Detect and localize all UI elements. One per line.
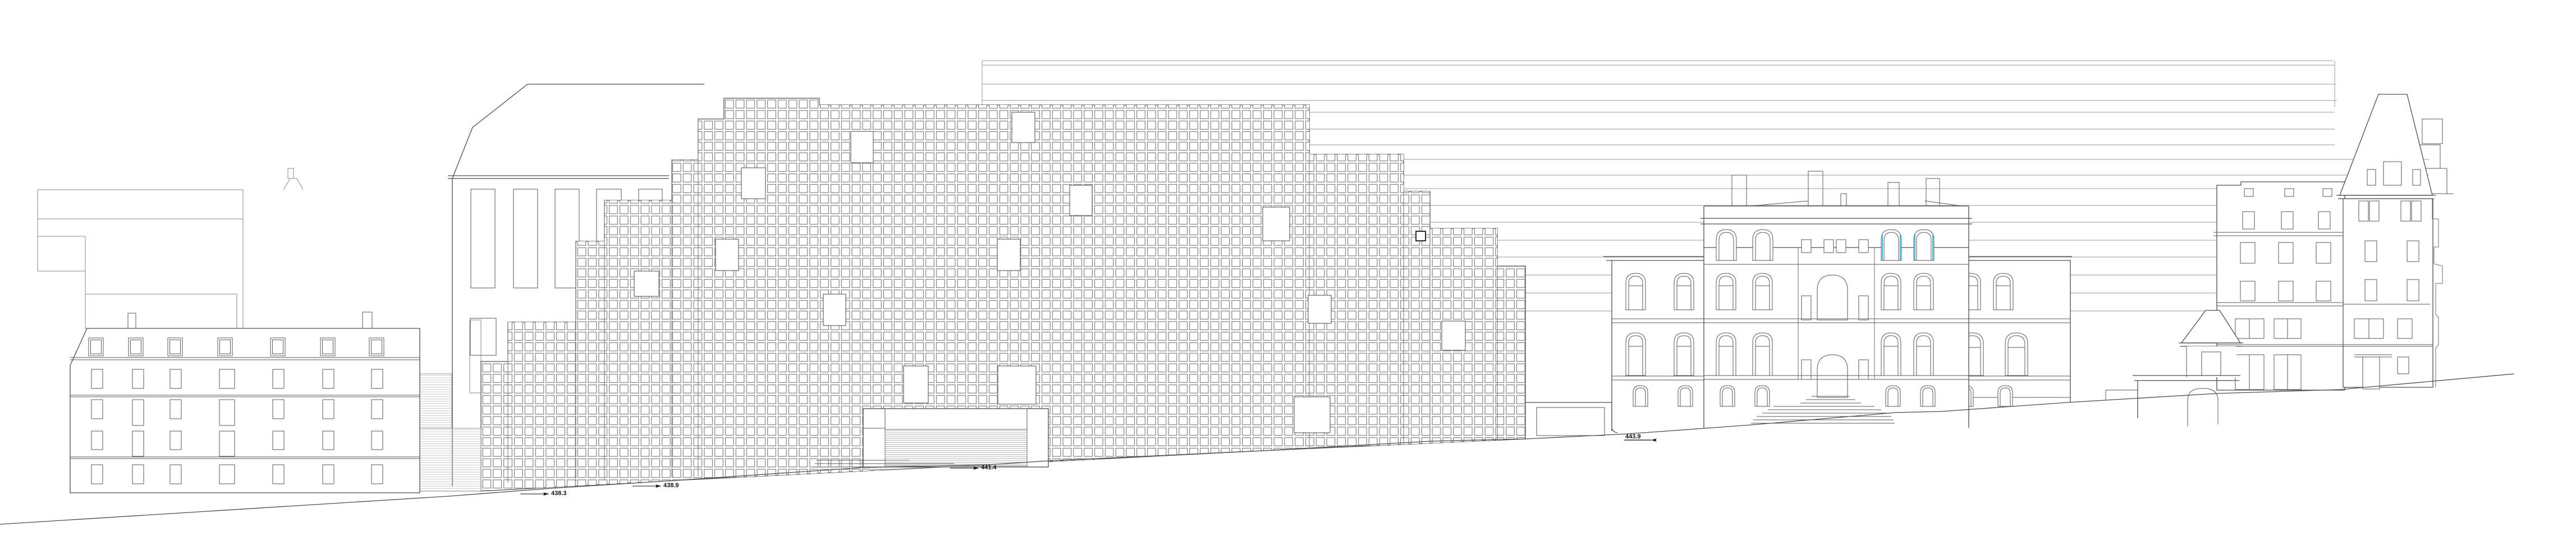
palazzo-chimneys (1732, 171, 1961, 207)
grid-large-opening (1442, 321, 1465, 350)
palazzo-left-wing (1603, 257, 1713, 433)
elevation-svg: 438.3 438.9 441.4 443.9 (0, 0, 2576, 554)
elevation-drawing: 438.3 438.9 441.4 443.9 (0, 0, 2576, 554)
palazzo-central-block (1700, 206, 1972, 428)
grid-large-opening (716, 239, 739, 271)
spot-elevation-value: 438.3 (551, 490, 567, 497)
left-background-volumes (38, 168, 303, 329)
chimney (363, 312, 372, 328)
spot-elevation: 443.9 (1624, 433, 1657, 442)
grid-large-opening (823, 294, 846, 326)
grid-large-opening (1070, 185, 1092, 216)
grid-large-opening (1308, 295, 1331, 323)
spot-elevation-value: 443.9 (1625, 433, 1641, 440)
grid-large-opening (904, 366, 928, 403)
grid-large-opening (851, 131, 873, 163)
grid-large-opening (1294, 397, 1330, 433)
chimney (128, 313, 136, 328)
tower-building (2336, 94, 2454, 389)
section-cut-edge (2432, 199, 2442, 387)
rear-wall-and-garage (1525, 402, 1612, 441)
grid-large-opening (998, 366, 1036, 404)
grid-large-opening (1012, 112, 1035, 143)
grid-accent-cell (1416, 231, 1425, 241)
chimney (2422, 119, 2442, 144)
left-building-outline (70, 328, 420, 493)
turret-and-porch (2106, 310, 2243, 427)
spot-elevation-value: 441.4 (981, 464, 997, 471)
grid-large-opening (997, 239, 1020, 271)
grid-large-opening (741, 168, 766, 199)
palazzo (1603, 171, 2072, 433)
left-apartment-building (70, 312, 420, 493)
spot-elevation: 438.3 (520, 490, 567, 497)
small-chimney (288, 168, 294, 178)
spot-elevation-value: 438.9 (663, 482, 679, 489)
right-building-cluster (2106, 94, 2454, 427)
grid-large-opening (634, 271, 659, 296)
small-roof-glyph (283, 178, 303, 190)
grid-large-opening (1263, 207, 1290, 241)
